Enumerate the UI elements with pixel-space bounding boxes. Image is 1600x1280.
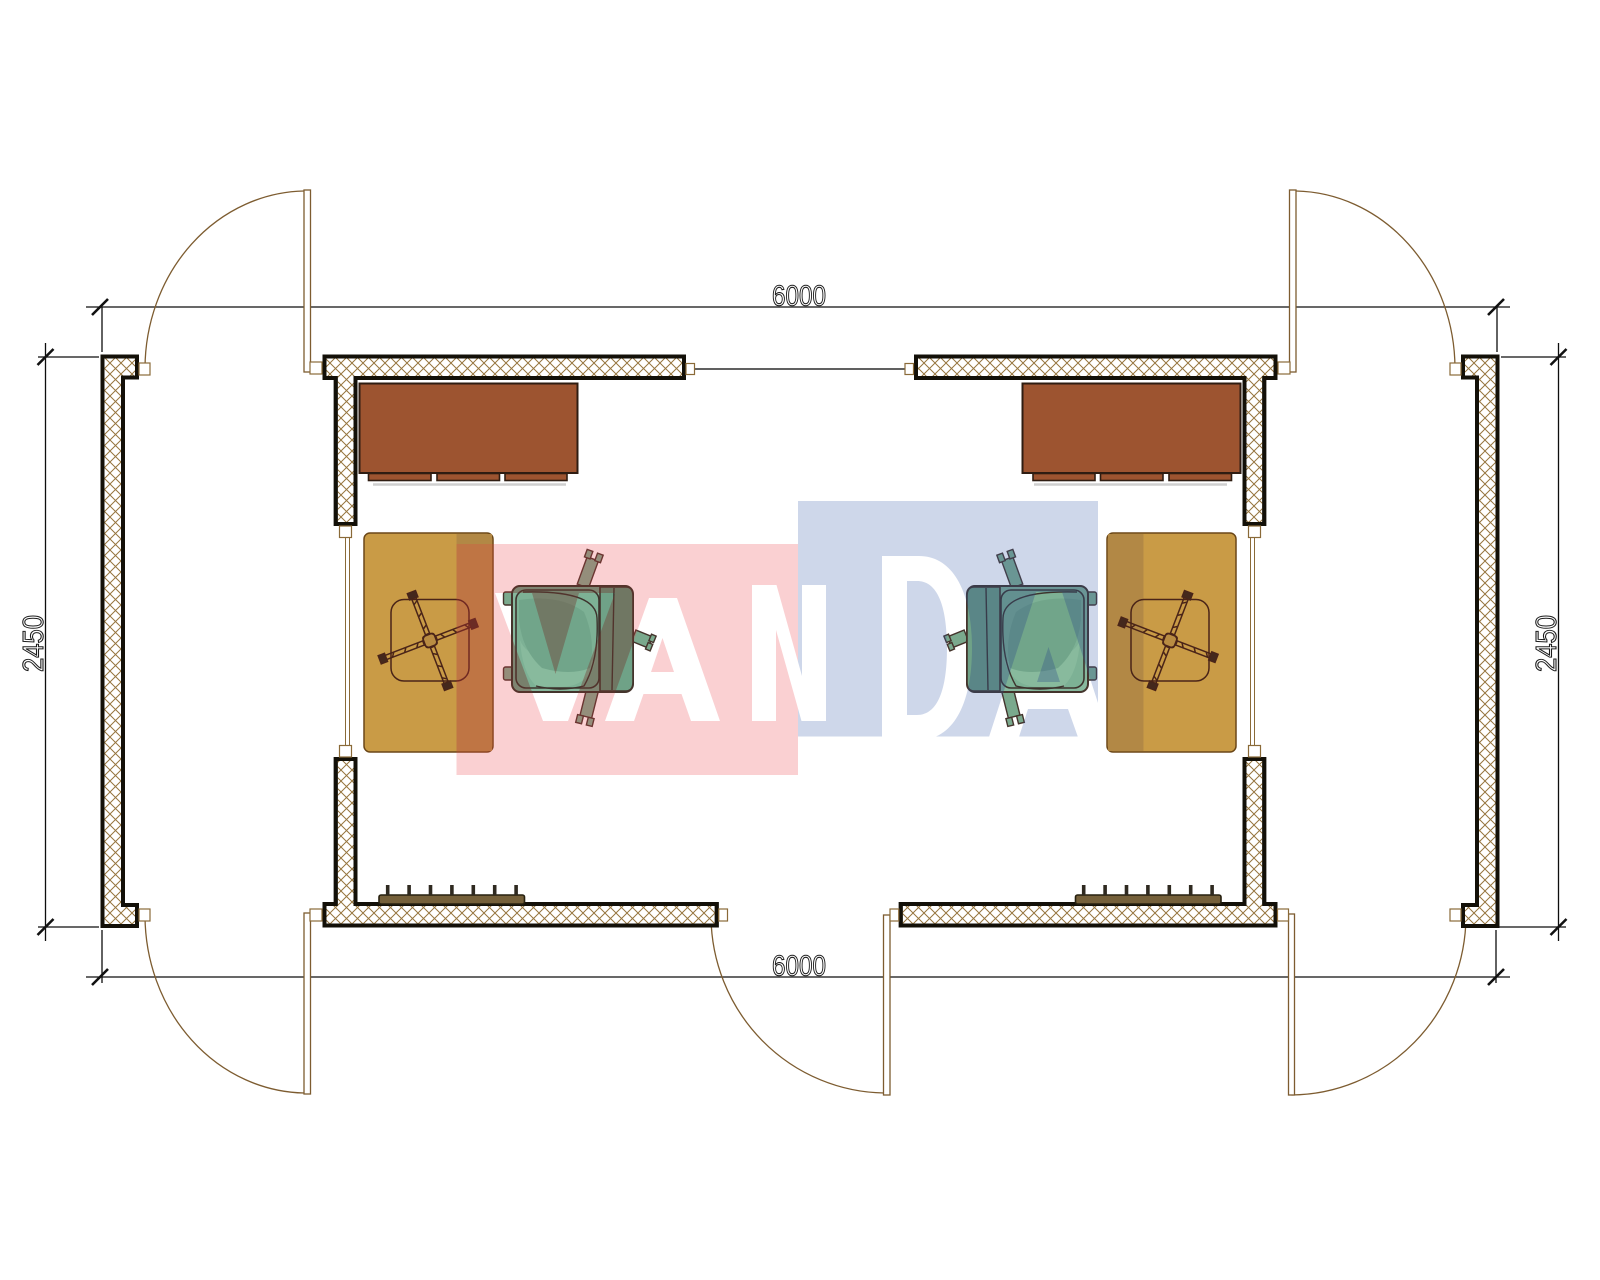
svg-text:2450: 2450: [18, 615, 50, 672]
svg-text:2450: 2450: [1531, 615, 1563, 672]
svg-text:6000: 6000: [772, 281, 826, 313]
svg-text:6000: 6000: [772, 951, 826, 983]
